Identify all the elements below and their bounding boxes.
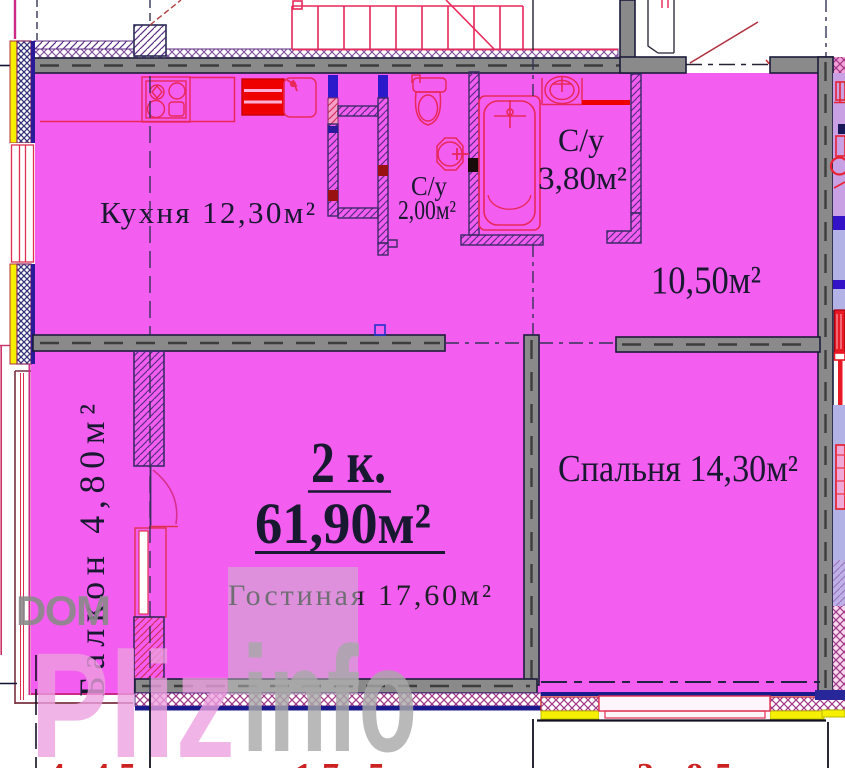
svg-text:Спальня 14,30м²: Спальня 14,30м² — [558, 448, 798, 490]
svg-text:2,00м²: 2,00м² — [398, 195, 456, 225]
svg-text:2 к.: 2 к. — [311, 430, 386, 495]
svg-text:info: info — [242, 615, 417, 768]
svg-text:Кухня 12,30м²: Кухня 12,30м² — [100, 195, 315, 230]
svg-text:Pliz: Pliz — [30, 621, 235, 768]
svg-text:10,50м²: 10,50м² — [651, 259, 761, 302]
svg-text:С/у: С/у — [558, 123, 604, 159]
svg-text:3,80м²: 3,80м² — [538, 161, 627, 197]
svg-text:61,90м²: 61,90м² — [255, 491, 431, 556]
svg-text:4,45: 4,45 — [48, 757, 136, 768]
